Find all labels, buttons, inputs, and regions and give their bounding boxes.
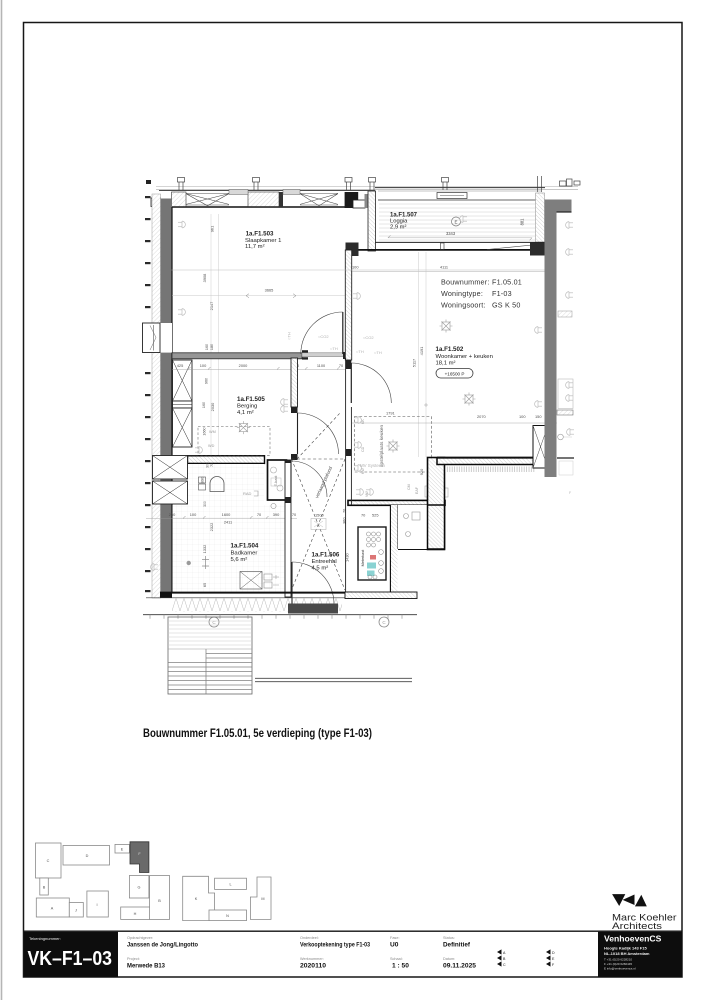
svg-text:5,6 m²: 5,6 m² bbox=[231, 557, 248, 563]
svg-text:D: D bbox=[552, 951, 555, 955]
svg-text:Project:: Project: bbox=[127, 957, 140, 961]
svg-text:C: C bbox=[47, 859, 50, 863]
svg-text:100: 100 bbox=[200, 363, 207, 368]
svg-text:WD: WD bbox=[208, 444, 215, 448]
svg-text:Meterkast: Meterkast bbox=[361, 549, 365, 567]
svg-text:5117: 5117 bbox=[412, 359, 417, 367]
svg-text:2020110: 2020110 bbox=[300, 963, 326, 970]
svg-text:65: 65 bbox=[202, 583, 207, 587]
svg-text:○TH: ○TH bbox=[356, 349, 364, 354]
svg-text:250: 250 bbox=[169, 512, 176, 517]
svg-text:B: B bbox=[43, 886, 46, 890]
svg-text:1a.F1.502: 1a.F1.502 bbox=[436, 346, 464, 353]
svg-text:Woningsoort:: Woningsoort: bbox=[441, 301, 486, 310]
svg-text:KW: KW bbox=[361, 468, 365, 474]
svg-text:2,9 m²: 2,9 m² bbox=[390, 225, 406, 231]
svg-text:opstelplaats keuken: opstelplaats keuken bbox=[379, 424, 385, 467]
svg-text:920: 920 bbox=[419, 468, 424, 475]
svg-text:F1-03: F1-03 bbox=[492, 289, 512, 298]
svg-text:300: 300 bbox=[203, 501, 207, 507]
svg-text:Berging: Berging bbox=[237, 404, 257, 410]
svg-text:4,5 m²: 4,5 m² bbox=[312, 566, 329, 572]
svg-text:2411: 2411 bbox=[224, 520, 232, 525]
svg-text:961: 961 bbox=[210, 226, 215, 233]
svg-text:U0: U0 bbox=[390, 942, 399, 949]
svg-text:150: 150 bbox=[535, 414, 542, 419]
svg-text:RAD: RAD bbox=[243, 491, 252, 496]
svg-text:2070: 2070 bbox=[477, 414, 486, 419]
svg-text:18,1 m²: 18,1 m² bbox=[436, 361, 456, 367]
svg-text:160: 160 bbox=[205, 344, 209, 350]
svg-text:1500: 1500 bbox=[315, 513, 324, 518]
svg-text:○TH: ○TH bbox=[330, 346, 338, 351]
svg-text:70: 70 bbox=[210, 463, 214, 467]
svg-text:E: E bbox=[454, 220, 457, 225]
svg-text:100: 100 bbox=[190, 512, 197, 517]
svg-text:1600: 1600 bbox=[222, 512, 231, 517]
svg-text:Tekeningnummer:: Tekeningnummer: bbox=[29, 936, 61, 941]
svg-text:VK–F1–03: VK–F1–03 bbox=[28, 948, 113, 970]
svg-text:11,7 m²: 11,7 m² bbox=[245, 244, 265, 250]
svg-text:CD: CD bbox=[361, 446, 365, 452]
svg-text:160: 160 bbox=[202, 402, 206, 408]
svg-text:Woonkamer + keuken: Woonkamer + keuken bbox=[436, 354, 493, 360]
svg-text:Datum:: Datum: bbox=[443, 957, 455, 961]
svg-text:3908: 3908 bbox=[202, 274, 207, 283]
svg-text:CM: CM bbox=[407, 484, 411, 490]
svg-text:F +31 (0)20 6266445: F +31 (0)20 6266445 bbox=[604, 962, 632, 966]
svg-text:T +31 (0)20 6228210: T +31 (0)20 6228210 bbox=[604, 958, 632, 962]
svg-text:390: 390 bbox=[273, 512, 280, 517]
svg-text:960: 960 bbox=[205, 378, 209, 384]
svg-text:G: G bbox=[138, 886, 141, 890]
svg-text:1a.F1.505: 1a.F1.505 bbox=[237, 396, 265, 403]
svg-text:4,1 m²: 4,1 m² bbox=[237, 410, 254, 416]
svg-text:881: 881 bbox=[520, 218, 525, 226]
svg-text:KK: KK bbox=[361, 419, 365, 424]
svg-text:Janssen de Jong/Lingotto: Janssen de Jong/Lingotto bbox=[127, 942, 198, 949]
svg-text:09.11.2025: 09.11.2025 bbox=[443, 963, 476, 970]
svg-text:Opdrachtgever:: Opdrachtgever: bbox=[127, 936, 153, 940]
svg-text:Fase:: Fase: bbox=[390, 936, 400, 940]
svg-text:1100: 1100 bbox=[317, 363, 326, 368]
svg-text:Merwede B13: Merwede B13 bbox=[127, 963, 165, 970]
svg-text:L: L bbox=[229, 883, 231, 887]
svg-text:N: N bbox=[226, 914, 229, 918]
svg-text:Verkooptekening type F1-03: Verkooptekening type F1-03 bbox=[300, 942, 370, 949]
svg-text:1660: 1660 bbox=[203, 427, 207, 435]
svg-text:Hoogte Kadijk 143 F15: Hoogte Kadijk 143 F15 bbox=[604, 946, 647, 951]
svg-text:Entreehal: Entreehal bbox=[312, 559, 337, 565]
svg-text:E-kast: E-kast bbox=[273, 475, 278, 487]
svg-text:300: 300 bbox=[206, 462, 210, 468]
svg-text:H: H bbox=[134, 912, 137, 916]
svg-text:D: D bbox=[86, 854, 89, 858]
svg-text:Onderdeel:: Onderdeel: bbox=[300, 936, 319, 940]
svg-text:J: J bbox=[75, 909, 77, 913]
svg-text:B: B bbox=[158, 899, 161, 903]
svg-text:2030: 2030 bbox=[210, 402, 215, 411]
svg-text:2147: 2147 bbox=[209, 302, 214, 311]
svg-text:○CO2: ○CO2 bbox=[318, 334, 329, 339]
svg-text:Status:: Status: bbox=[443, 936, 455, 940]
svg-text:○TH: ○TH bbox=[374, 350, 382, 355]
svg-text:Werknummer:: Werknummer: bbox=[300, 957, 324, 961]
svg-text:I: I bbox=[96, 903, 97, 907]
svg-text:Badkamer: Badkamer bbox=[231, 550, 258, 556]
svg-text:K: K bbox=[195, 897, 198, 901]
svg-text:WM: WM bbox=[209, 430, 216, 434]
svg-text:Bouwnummer:: Bouwnummer: bbox=[441, 278, 490, 287]
svg-text:C: C bbox=[503, 963, 506, 967]
svg-text:GS K 50: GS K 50 bbox=[492, 301, 521, 310]
svg-text:VenhoevenCS: VenhoevenCS bbox=[604, 934, 662, 944]
svg-text:○TH: ○TH bbox=[287, 332, 292, 340]
svg-text:1791: 1791 bbox=[386, 411, 395, 416]
svg-text:Definitief: Definitief bbox=[443, 942, 471, 949]
svg-text:M: M bbox=[261, 897, 264, 901]
svg-text:2000: 2000 bbox=[239, 363, 248, 368]
svg-text:NL-1018 BH Amsterdam: NL-1018 BH Amsterdam bbox=[604, 951, 650, 956]
svg-text:E: E bbox=[121, 848, 124, 852]
svg-text:1a.F1.506: 1a.F1.506 bbox=[312, 552, 340, 559]
svg-text:4191: 4191 bbox=[419, 347, 424, 356]
svg-text:Schaal:: Schaal: bbox=[390, 957, 403, 961]
svg-text:F1.05.01: F1.05.01 bbox=[492, 278, 522, 287]
svg-text:MV Systeem: MV Systeem bbox=[360, 463, 385, 468]
svg-text:1332: 1332 bbox=[202, 545, 207, 554]
svg-text:+16500 P: +16500 P bbox=[445, 372, 465, 377]
svg-text:525: 525 bbox=[372, 513, 379, 518]
svg-text:Architects: Architects bbox=[612, 921, 663, 931]
svg-text:Slaapkamer 1: Slaapkamer 1 bbox=[245, 238, 281, 244]
svg-text:425: 425 bbox=[177, 363, 184, 368]
svg-text:A: A bbox=[51, 907, 54, 911]
svg-text:3665: 3665 bbox=[265, 288, 274, 293]
svg-text:100: 100 bbox=[519, 414, 526, 419]
svg-text:3343: 3343 bbox=[446, 231, 456, 236]
svg-text:180: 180 bbox=[210, 344, 214, 350]
svg-text:2322: 2322 bbox=[209, 523, 214, 532]
svg-text:100: 100 bbox=[352, 265, 359, 270]
svg-text:○CO2: ○CO2 bbox=[363, 335, 374, 340]
svg-text:4111: 4111 bbox=[440, 265, 448, 270]
svg-text:1a.F1.504: 1a.F1.504 bbox=[231, 543, 259, 550]
svg-text:Woningtype:: Woningtype: bbox=[441, 289, 483, 298]
svg-text:890: 890 bbox=[200, 476, 205, 483]
svg-text:1a.F1.503: 1a.F1.503 bbox=[246, 231, 274, 238]
svg-text:1 : 50: 1 : 50 bbox=[392, 963, 409, 970]
svg-text:E info@venhoevencs.nl: E info@venhoevencs.nl bbox=[604, 967, 636, 971]
svg-text:Bouwnummer F1.05.01, 5e verdie: Bouwnummer F1.05.01, 5e verdieping (type… bbox=[143, 728, 372, 740]
svg-text:EAF: EAF bbox=[415, 486, 419, 494]
svg-text:VW: VW bbox=[365, 491, 369, 497]
